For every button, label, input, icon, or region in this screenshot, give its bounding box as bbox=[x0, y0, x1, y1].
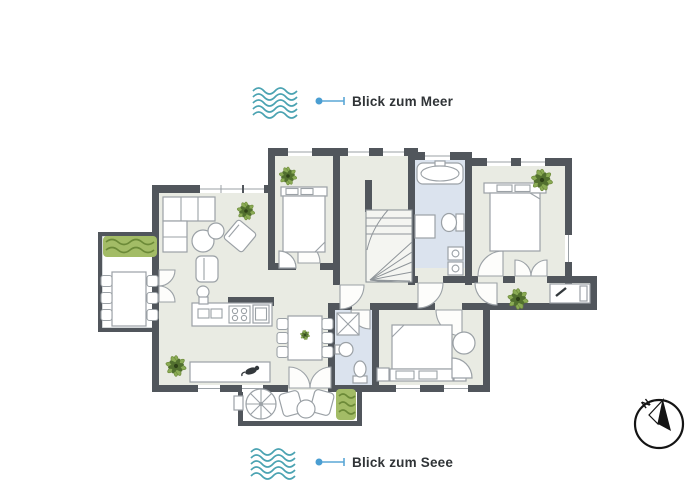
window bbox=[288, 148, 312, 156]
window bbox=[444, 385, 468, 392]
window bbox=[565, 235, 572, 262]
nightstand bbox=[377, 368, 389, 381]
balcony-furniture bbox=[101, 236, 158, 326]
double-bed bbox=[484, 183, 546, 251]
round-table bbox=[453, 332, 475, 354]
faucet-icon bbox=[197, 286, 209, 298]
sea-view-label: Blick zum Meer bbox=[352, 94, 453, 109]
waves-icon bbox=[253, 88, 297, 118]
parasol-icon bbox=[246, 389, 276, 419]
staircase bbox=[366, 210, 412, 282]
view-indicator-bottom bbox=[316, 458, 345, 466]
window bbox=[396, 385, 420, 392]
window bbox=[521, 158, 545, 166]
vanity bbox=[415, 215, 435, 238]
sideboard bbox=[190, 362, 270, 382]
window bbox=[487, 158, 511, 166]
compass-icon: N bbox=[635, 397, 683, 448]
hedge-icon bbox=[103, 236, 157, 257]
floorplan-page: N Blick zum Meer Blick zum Seee bbox=[0, 0, 700, 500]
window bbox=[198, 385, 220, 392]
toilet-icon bbox=[353, 361, 367, 383]
view-indicator-top bbox=[316, 97, 345, 105]
window bbox=[383, 148, 404, 156]
window bbox=[425, 152, 450, 160]
toilet-icon bbox=[442, 214, 465, 232]
outdoor-dining-table bbox=[101, 272, 158, 326]
armchair bbox=[196, 256, 218, 282]
floor-plan: N bbox=[0, 0, 700, 500]
lake-view-label: Blick zum Seee bbox=[352, 455, 453, 470]
outdoor-table bbox=[297, 400, 315, 418]
double-bed bbox=[281, 187, 327, 252]
window bbox=[348, 148, 369, 156]
window bbox=[244, 185, 264, 193]
window bbox=[200, 185, 242, 193]
bathtub-icon bbox=[417, 161, 463, 184]
washbasin-icon bbox=[335, 343, 353, 357]
daybed bbox=[550, 284, 590, 303]
side-table bbox=[208, 223, 224, 239]
bedroom-bottom-furniture bbox=[377, 325, 475, 381]
terrace-step bbox=[234, 396, 243, 410]
dining-table bbox=[277, 316, 333, 360]
shower-icon bbox=[337, 313, 359, 335]
hedge-icon bbox=[336, 389, 356, 420]
waves-icon bbox=[251, 449, 295, 479]
